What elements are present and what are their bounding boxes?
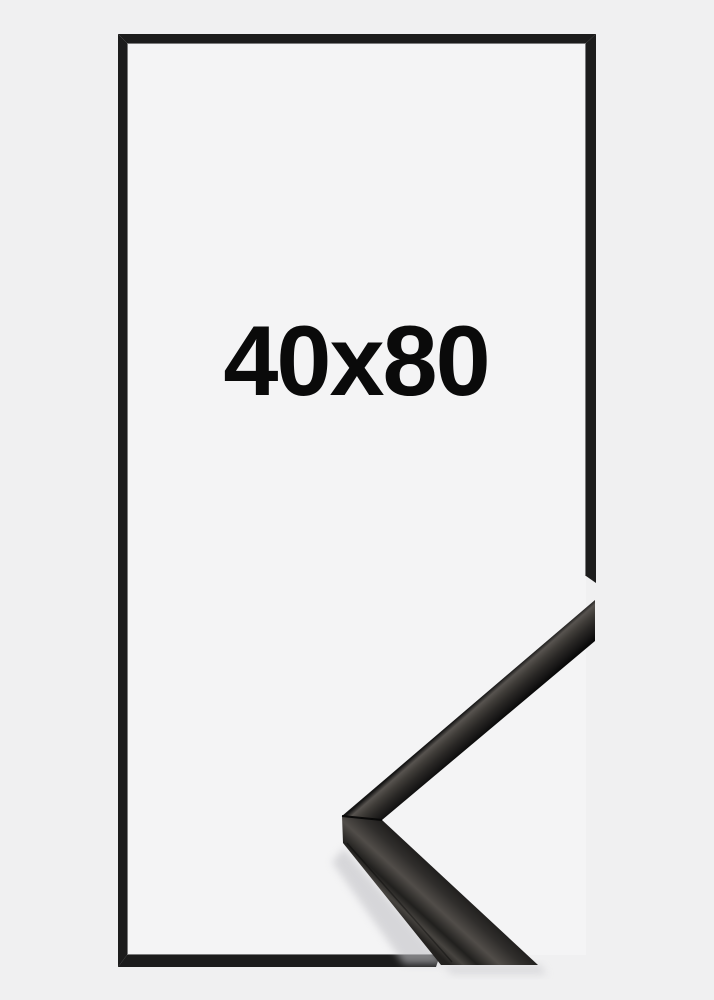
size-label: 40x80 [117, 311, 595, 410]
frame-graphic [0, 0, 714, 1000]
corner-shadow-bottom [442, 964, 547, 975]
frame-right-edge [586, 34, 596, 583]
frame-left-edge [118, 34, 127, 967]
frame-top-edge [118, 34, 596, 43]
frame-bottom-edge [118, 955, 440, 967]
product-image: 40x80 [0, 0, 714, 1000]
